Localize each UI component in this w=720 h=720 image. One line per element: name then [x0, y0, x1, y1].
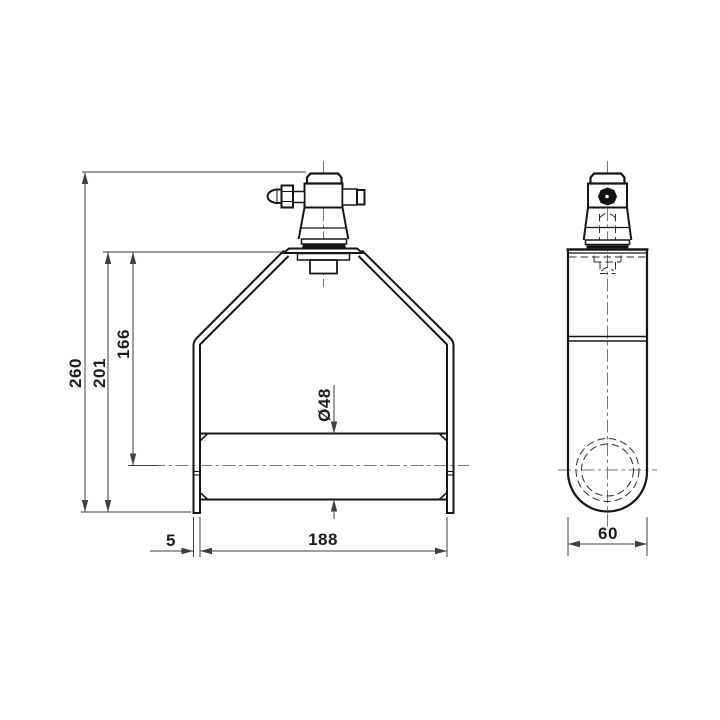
technical-drawing [0, 0, 720, 720]
dimension-arrows [82, 172, 647, 554]
weld-fillets [200, 434, 447, 499]
drawing-canvas: 260 201 166 Ø48 5 188 60 [0, 0, 720, 720]
coupler-front [268, 174, 365, 247]
front-view [193, 174, 455, 514]
top-plate [284, 249, 363, 254]
plate-seam-ticks [194, 472, 454, 476]
center-lines [152, 161, 657, 529]
washer [298, 254, 350, 261]
nut [310, 260, 337, 274]
grease-nipple [268, 190, 282, 204]
